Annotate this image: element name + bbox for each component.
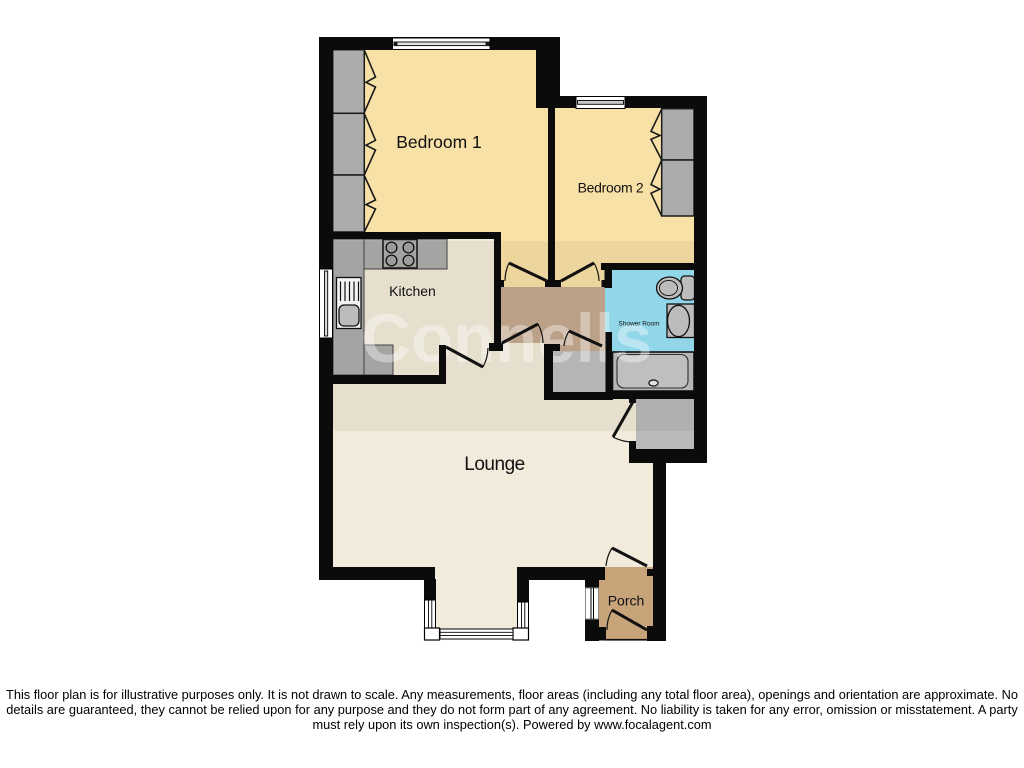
svg-text:Porch: Porch	[608, 593, 645, 609]
svg-text:Bedroom 2: Bedroom 2	[578, 180, 644, 196]
svg-text:Lounge: Lounge	[464, 454, 524, 475]
svg-text:Bedroom 1: Bedroom 1	[396, 132, 482, 152]
svg-text:Kitchen: Kitchen	[389, 283, 436, 299]
svg-text:Shower Room: Shower Room	[618, 321, 659, 328]
